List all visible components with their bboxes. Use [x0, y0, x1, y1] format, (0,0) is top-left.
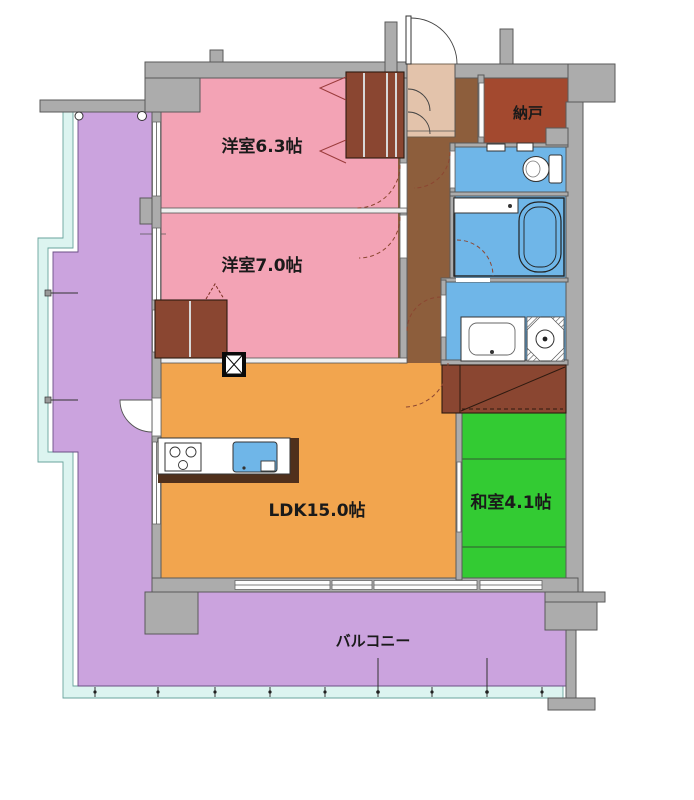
label-storage: 納戸: [513, 104, 543, 122]
wall-toilet-bottom: [450, 192, 568, 196]
kitchen-counter: [158, 438, 299, 483]
door-gap-west2: [400, 215, 407, 258]
balcony-door-gap: [152, 398, 161, 436]
entry-genkan: [407, 64, 455, 137]
label-western-room-2: 洋室7.0帖: [221, 255, 302, 276]
wall-br-foot: [548, 698, 595, 710]
balcony-pillar: [145, 592, 198, 634]
pillar-shaft: [222, 352, 246, 377]
wall-western2-ldk: [161, 358, 407, 363]
wall-top-right-block: [568, 64, 615, 102]
wall-between-western-rooms: [161, 208, 407, 213]
wall-stub: [500, 29, 513, 64]
wall-top-right: [455, 64, 568, 78]
label-western-room-1: 洋室6.3帖: [221, 136, 302, 157]
wall-ext-box: [140, 198, 152, 224]
wall-br-block: [545, 602, 597, 630]
toilet-door-gap: [450, 151, 455, 188]
wall-br-block: [545, 592, 605, 602]
hose-bib-icon: [75, 112, 83, 120]
wall-stub: [385, 22, 397, 78]
floor-plan: 洋室6.3帖 洋室7.0帖 LDK15.0帖 和室4.1帖 納戸 バルコニー: [0, 0, 694, 800]
storage-sliding-door: [479, 83, 484, 137]
entrance-door: [406, 16, 457, 64]
storage-step: [546, 128, 568, 145]
closet-oshiire: [442, 365, 566, 413]
hose-bib-icon: [138, 112, 147, 121]
label-balcony: バルコニー: [336, 632, 411, 650]
wall-right: [566, 102, 583, 592]
label-ldk: LDK15.0帖: [268, 500, 365, 521]
wall-stub: [210, 50, 223, 62]
window-japanese-slider: [457, 462, 461, 532]
door-gap-west1: [400, 163, 407, 208]
wall-br-stem: [566, 630, 576, 698]
wall-top-left-strip: [40, 100, 152, 112]
gas-stove: [165, 443, 201, 471]
floor-plan-drawing: 洋室6.3帖 洋室7.0帖 LDK15.0帖 和室4.1帖 納戸 バルコニー: [0, 0, 694, 800]
washroom-door-gap: [441, 295, 446, 337]
washing-machine: [527, 317, 564, 361]
label-japanese-room: 和室4.1帖: [470, 492, 551, 513]
washroom-fixtures: [461, 317, 564, 361]
bathtub: [519, 202, 561, 272]
bath-door-gap: [456, 278, 490, 282]
